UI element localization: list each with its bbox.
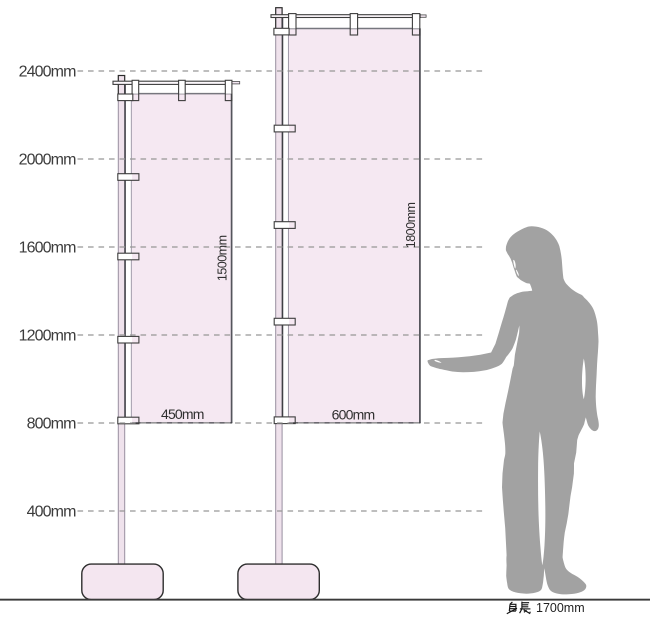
svg-text:800mm: 800mm xyxy=(27,415,76,432)
svg-text:400mm: 400mm xyxy=(27,503,76,520)
svg-text:600mm: 600mm xyxy=(332,407,375,423)
svg-text:1700mm: 1700mm xyxy=(536,601,585,615)
svg-text:1200mm: 1200mm xyxy=(19,327,76,344)
svg-text:1500mm: 1500mm xyxy=(215,235,229,281)
svg-text:1600mm: 1600mm xyxy=(19,239,76,256)
svg-text:2400mm: 2400mm xyxy=(19,63,76,80)
svg-text:450mm: 450mm xyxy=(161,406,204,422)
svg-text:2000mm: 2000mm xyxy=(19,151,76,168)
svg-text:1800mm: 1800mm xyxy=(404,203,418,249)
